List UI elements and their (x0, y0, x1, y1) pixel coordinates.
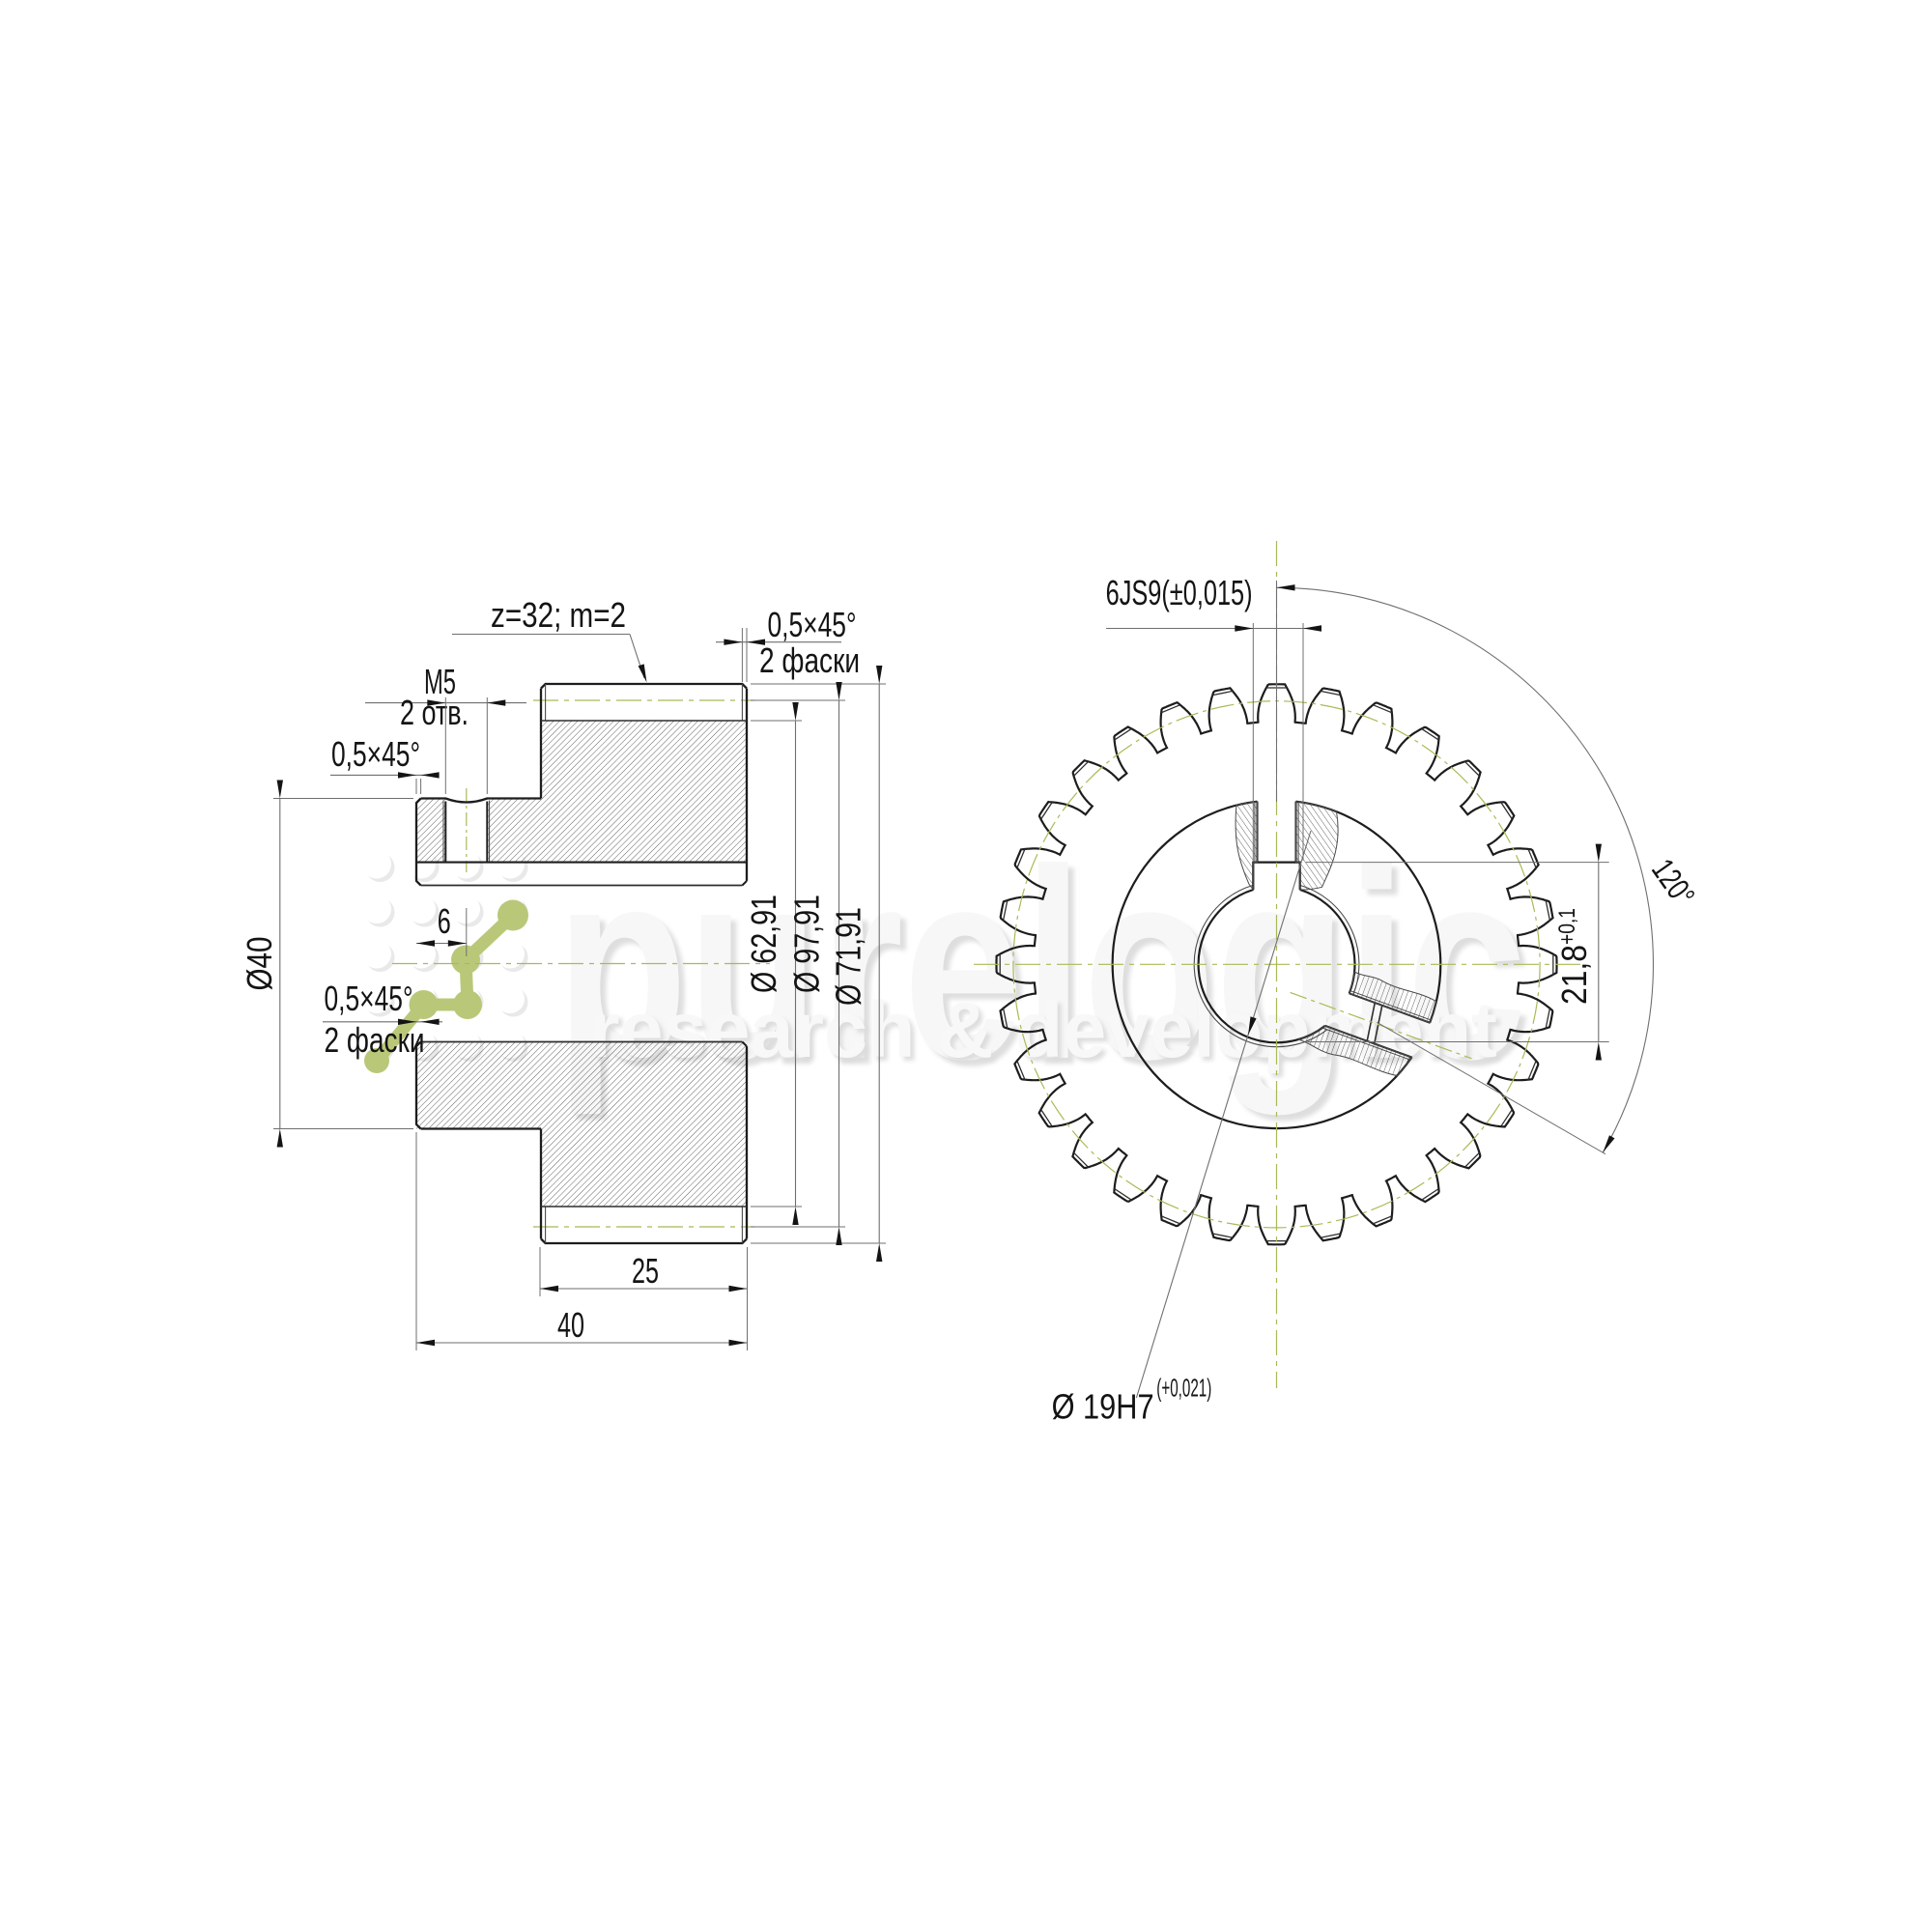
svg-text:2 отв.: 2 отв. (400, 693, 469, 732)
svg-text:(+0,021): (+0,021) (1156, 1374, 1211, 1403)
svg-text:0,5×45°: 0,5×45° (768, 605, 857, 644)
svg-text:6: 6 (438, 901, 451, 941)
svg-text:Ø40: Ø40 (240, 937, 279, 991)
svg-text:40: 40 (557, 1305, 584, 1345)
svg-text:2 фаски: 2 фаски (325, 1020, 425, 1060)
svg-text:Ø 19H7: Ø 19H7 (1052, 1387, 1154, 1427)
svg-text:Ø 62,91: Ø 62,91 (744, 895, 783, 993)
svg-text:25: 25 (632, 1251, 659, 1291)
svg-text:2 фаски: 2 фаски (759, 640, 860, 680)
svg-text:0,5×45°: 0,5×45° (325, 979, 413, 1018)
svg-text:0,5×45°: 0,5×45° (331, 734, 420, 774)
svg-text:Ø 71,91: Ø 71,91 (828, 907, 867, 1006)
svg-text:6JS9(±0,015): 6JS9(±0,015) (1106, 573, 1253, 612)
svg-text:Ø 97,91: Ø 97,91 (787, 895, 827, 993)
svg-text:z=32; m=2: z=32; m=2 (491, 595, 626, 635)
